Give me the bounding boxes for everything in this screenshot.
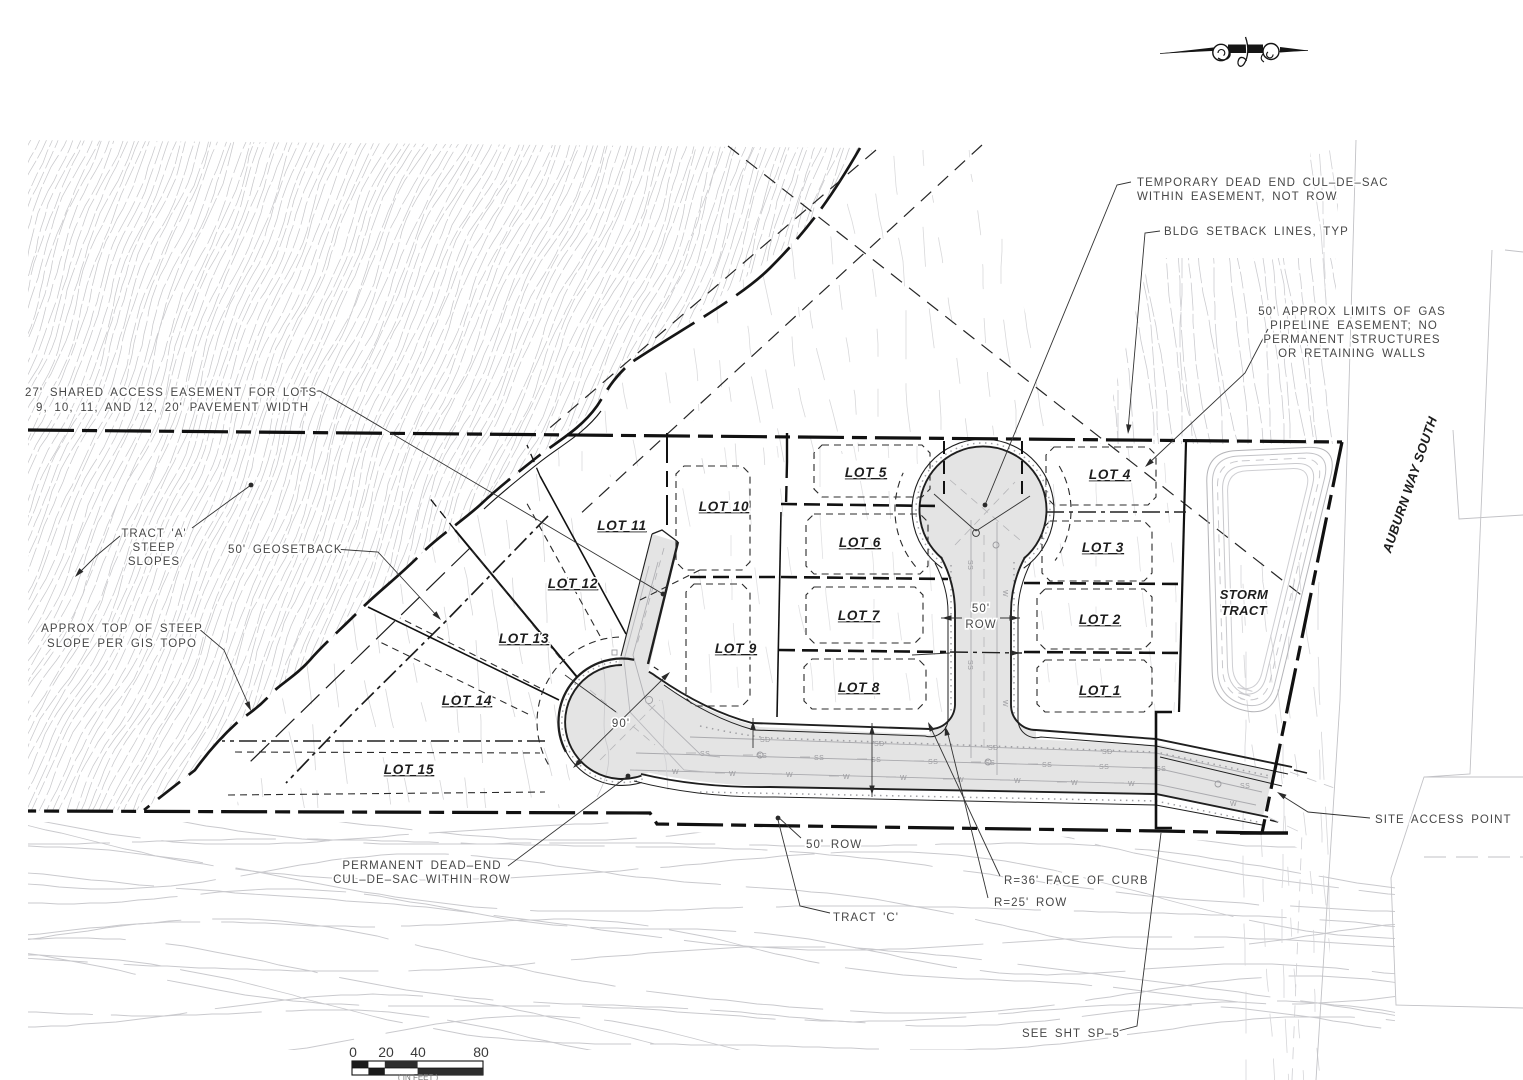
svg-text:LOT 4: LOT 4 [1089,467,1131,482]
svg-text:PIPELINE EASEMENT; NO: PIPELINE EASEMENT; NO [1270,320,1438,332]
svg-text:50': 50' [972,603,990,615]
svg-text:LOT 12: LOT 12 [548,576,599,591]
svg-text:50' ROW: 50' ROW [806,839,862,851]
svg-text:SS: SS [1042,762,1052,769]
svg-text:SS: SS [1240,783,1250,790]
svg-text:WITHIN EASEMENT, NOT ROW: WITHIN EASEMENT, NOT ROW [1137,191,1338,203]
svg-text:27' SHARED ACCESS EASEMENT FOR: 27' SHARED ACCESS EASEMENT FOR LOTS [25,387,317,399]
svg-text:LOT 14: LOT 14 [442,693,493,708]
svg-text:TEMPORARY DEAD END CUL–DE–SAC: TEMPORARY DEAD END CUL–DE–SAC [1137,177,1389,189]
svg-text:TRACT: TRACT [1221,603,1268,618]
svg-text:80: 80 [473,1044,489,1060]
svg-text:LOT 11: LOT 11 [597,518,647,533]
svg-text:W: W [1128,781,1135,788]
svg-text:SD: SD [760,737,771,744]
svg-text:LOT 15: LOT 15 [384,762,435,777]
svg-text:TRACT 'A': TRACT 'A' [121,528,186,540]
svg-text:LOT 2: LOT 2 [1079,612,1121,627]
svg-text:SS: SS [1099,764,1109,771]
svg-text:W: W [1230,801,1237,808]
svg-text:( IN FEET ): ( IN FEET ) [398,1073,439,1080]
svg-text:90': 90' [612,718,630,730]
svg-text:LOT 3: LOT 3 [1082,540,1124,555]
svg-text:50' GEOSETBACK: 50' GEOSETBACK [228,544,343,556]
svg-text:LOT 1: LOT 1 [1079,683,1121,698]
svg-text:LOT 7: LOT 7 [838,608,881,623]
svg-text:CUL–DE–SAC WITHIN ROW: CUL–DE–SAC WITHIN ROW [333,874,511,886]
svg-text:STEEP: STEEP [133,542,176,554]
svg-text:LOT 6: LOT 6 [839,535,881,550]
svg-text:SS: SS [928,759,938,766]
svg-text:OR RETAINING WALLS: OR RETAINING WALLS [1278,348,1426,360]
svg-text:PERMANENT STRUCTURES: PERMANENT STRUCTURES [1263,334,1440,346]
svg-text:W: W [1001,590,1008,597]
svg-text:W: W [672,769,679,776]
svg-text:SD: SD [988,745,999,752]
svg-text:SD: SD [874,741,885,748]
svg-text:TRACT 'C': TRACT 'C' [833,912,899,924]
svg-text:50' APPROX LIMITS OF GAS: 50' APPROX LIMITS OF GAS [1258,306,1446,318]
svg-text:9, 10, 11, AND 12, 20' PAVEMEN: 9, 10, 11, AND 12, 20' PAVEMENT WIDTH [36,402,309,414]
svg-text:R=25' ROW: R=25' ROW [994,897,1067,909]
svg-text:W: W [957,777,964,784]
svg-text:BLDG SETBACK LINES, TYP: BLDG SETBACK LINES, TYP [1164,226,1349,238]
svg-text:W: W [1014,778,1021,785]
svg-text:PERMANENT DEAD–END: PERMANENT DEAD–END [342,860,501,872]
svg-text:W: W [1001,700,1008,707]
svg-text:SS: SS [814,755,824,762]
svg-text:SITE ACCESS POINT: SITE ACCESS POINT [1375,814,1512,826]
svg-text:20: 20 [378,1044,394,1060]
svg-text:LOT 10: LOT 10 [699,499,750,514]
svg-text:W: W [843,774,850,781]
svg-text:SS: SS [966,660,973,670]
svg-text:W: W [900,775,907,782]
svg-text:R=36' FACE OF CURB: R=36' FACE OF CURB [1004,875,1149,887]
svg-text:ROW: ROW [965,619,996,631]
svg-text:SLOPES: SLOPES [128,556,180,568]
svg-text:0: 0 [349,1044,357,1060]
svg-text:SS: SS [871,757,881,764]
svg-text:SS: SS [966,560,973,570]
svg-text:40: 40 [410,1044,426,1060]
svg-text:SLOPE PER GIS TOPO: SLOPE PER GIS TOPO [47,638,197,650]
svg-text:STORM: STORM [1220,587,1269,602]
svg-text:SS: SS [700,751,710,758]
svg-text:W: W [786,772,793,779]
svg-text:LOT 13: LOT 13 [499,631,550,646]
svg-text:LOT 8: LOT 8 [838,680,880,695]
svg-text:SEE SHT SP–5: SEE SHT SP–5 [1022,1028,1120,1040]
svg-text:W: W [729,771,736,778]
svg-text:SS: SS [1156,766,1166,773]
svg-text:LOT 9: LOT 9 [715,641,757,656]
svg-text:SD: SD [1102,749,1113,756]
svg-text:LOT 5: LOT 5 [845,465,887,480]
svg-text:APPROX TOP OF STEEP: APPROX TOP OF STEEP [41,623,203,635]
svg-text:W: W [1071,780,1078,787]
